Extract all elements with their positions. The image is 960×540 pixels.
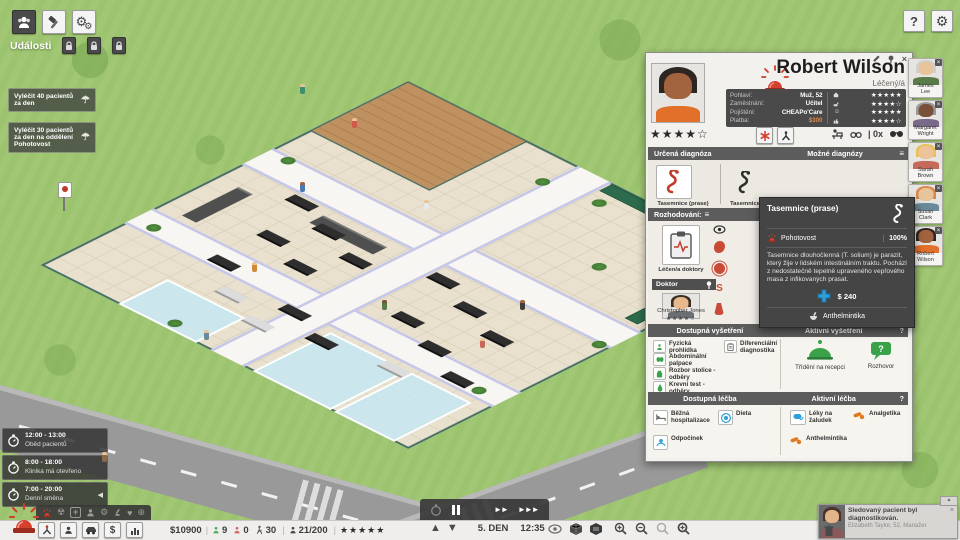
zoom-in-button[interactable] xyxy=(614,522,627,535)
stopwatch-icon xyxy=(7,488,20,501)
person-icon xyxy=(64,525,73,535)
mortar-icon xyxy=(809,312,818,321)
lock-icon xyxy=(65,41,73,51)
treatment-label: Dieta xyxy=(736,410,751,417)
diet-plate-icon xyxy=(721,413,731,423)
transport-button[interactable] xyxy=(82,522,99,538)
stopwatch-icon xyxy=(7,461,20,474)
exam-item[interactable]: Abdominální palpace xyxy=(653,353,719,367)
trash-button[interactable] xyxy=(824,525,834,537)
active-treatment-label: Léky na žaludek xyxy=(809,410,850,424)
org-icon xyxy=(42,525,52,535)
conversation-icon: ? xyxy=(870,341,892,361)
patient-info-box: Pohlaví:Muž, 52 Zaměstnání:Učitel Pojišt… xyxy=(726,89,906,127)
hospital-bed-icon xyxy=(656,414,666,422)
person[interactable] xyxy=(102,452,107,462)
person[interactable] xyxy=(204,330,209,340)
hospital-rating-stars: ★★★★★ xyxy=(340,525,385,536)
blood-test-icon xyxy=(657,384,663,392)
floor-down-button[interactable]: ▼ xyxy=(447,522,458,534)
physical-exam-icon xyxy=(656,343,663,351)
diagnosis-tree-button[interactable] xyxy=(777,127,794,144)
cardiology-dept-tab-icon[interactable]: ♥ xyxy=(127,508,132,518)
org-icon xyxy=(781,131,791,141)
treated-by-doctors-card[interactable] xyxy=(662,225,700,265)
active-treatment-label: Analgetika xyxy=(869,410,900,417)
notification-close-icon[interactable]: × xyxy=(947,505,957,538)
patient-panel: × Robert Wilson Léčený/á Pohlaví:Muž, 52… xyxy=(645,52,913,462)
zoom-reset-button[interactable] xyxy=(656,522,669,535)
schedule-row[interactable]: 8:00 - 18:00Klinika má otevřeno xyxy=(2,455,108,480)
emergency-dept-icon xyxy=(767,233,777,243)
schedule-row[interactable]: 12:00 - 13:00Oběd pacientů xyxy=(2,428,108,453)
notification-toast[interactable]: Sledovaný pacient byl diagnostikován. El… xyxy=(818,504,958,539)
fast-forward-button[interactable]: ►► xyxy=(494,505,508,514)
exams-available-header: Dostupná vyšetření xyxy=(648,326,772,335)
road-sign-pole xyxy=(63,197,65,211)
help-icon: ? xyxy=(910,14,918,29)
diagnosis-card-confirmed[interactable] xyxy=(656,165,692,199)
car-icon xyxy=(85,526,97,535)
differential-icon xyxy=(727,343,734,351)
people-icon xyxy=(17,15,31,29)
doctor-name: Christopher Jones xyxy=(648,308,714,315)
stopwatch-icon xyxy=(7,434,20,447)
game-screen: ⚙⚙ Události Vyléčit 40 pacientů za den ☂… xyxy=(0,0,960,540)
queue-patient-card[interactable]: MargaretWright× xyxy=(908,100,943,140)
active-treatment-label: Anthelmintika xyxy=(806,435,847,442)
pause-button[interactable] xyxy=(452,505,460,515)
decision-header: Rozhodování: xyxy=(648,210,702,219)
diagnosis-confirmed-label: Tasemnice (prase) xyxy=(648,201,718,208)
active-exam-label: Rozhovor xyxy=(856,363,906,370)
staff-list-button[interactable] xyxy=(60,522,77,538)
treatment-label: Běžná hospitalizace xyxy=(671,410,715,424)
info-label: Pojištění: xyxy=(730,109,755,116)
treatment-item[interactable]: Odpočinek xyxy=(653,435,715,450)
patient-ok-icon xyxy=(212,525,220,535)
pin-location-icon xyxy=(706,281,712,289)
schedule-label: Klinika má otevřeno xyxy=(25,468,81,476)
queue-patient-name: SarahBrown xyxy=(909,168,942,180)
list-icon[interactable]: ≡ xyxy=(895,149,908,158)
lock-icon xyxy=(90,41,98,51)
diagnosis-card-possible[interactable] xyxy=(728,165,762,199)
staff-menu-button[interactable] xyxy=(12,10,36,34)
queue-patient-name: MargaretWright xyxy=(909,126,942,138)
comfort-stat-icon xyxy=(833,101,839,107)
bar-chart-icon xyxy=(130,526,140,535)
menu-icon: ≡ xyxy=(702,210,710,219)
playback-strip: ►► ►►► xyxy=(420,499,549,520)
view-mode-button[interactable] xyxy=(570,523,582,535)
handcuffs-icon xyxy=(850,129,862,140)
tooltip-dept-label: Pohotovost xyxy=(781,235,879,242)
org-chart-button[interactable] xyxy=(38,522,55,538)
person[interactable] xyxy=(300,84,305,94)
doctor-rating: ★★★★☆ xyxy=(648,316,714,322)
active-treatment-item[interactable]: Analgetika xyxy=(853,410,907,420)
clinic-dept-tab-icon[interactable]: + xyxy=(70,507,81,518)
zoom-fit-button[interactable] xyxy=(677,522,690,535)
emergency-dept-tab-icon[interactable] xyxy=(42,508,52,518)
road-sign xyxy=(58,182,72,198)
possible-header: Možné diagnózy xyxy=(775,149,896,158)
stopwatch-icon xyxy=(430,504,442,516)
stats-button[interactable] xyxy=(126,522,143,538)
event-slot-locked[interactable] xyxy=(62,37,76,54)
schedule-time: 8:00 - 18:00 xyxy=(25,459,62,466)
patient-critical-icon xyxy=(233,525,241,535)
svg-text:?: ? xyxy=(878,344,884,354)
queue-close-icon[interactable]: × xyxy=(935,227,942,234)
info-value: Učitel xyxy=(806,100,823,107)
fastest-forward-button[interactable]: ►►► xyxy=(518,505,539,514)
layer-mode-button[interactable] xyxy=(590,523,602,535)
event-slot-locked[interactable] xyxy=(112,37,126,54)
person[interactable] xyxy=(480,338,485,348)
diagnosed-header: Určená diagnóza xyxy=(648,149,775,158)
collapse-arrow-icon[interactable]: ◀ xyxy=(98,491,103,499)
treated-by-label: Léčen/a doktory xyxy=(648,267,714,274)
lock-icon xyxy=(115,41,123,51)
edit-icon[interactable] xyxy=(872,55,880,63)
patient-walking-count: 30 xyxy=(266,525,277,536)
capacity-icon xyxy=(289,525,297,535)
tooltip-price: $ 240 xyxy=(837,292,856,301)
objective-banner: Vyléčit 40 pacientů za den ☂ xyxy=(8,88,96,112)
patient-ok-count: 9 xyxy=(222,525,227,536)
queue-patient-name: JamesLee xyxy=(909,84,942,96)
person[interactable] xyxy=(300,182,305,192)
info-value: CHEAPo'Care xyxy=(782,109,823,116)
exam-label: Abdominální palpace xyxy=(669,353,719,367)
tooltip-treatment: Anthelmintika xyxy=(823,313,865,320)
gears-icon-small: ⚙ xyxy=(84,21,92,32)
settings-dept-tab-icon[interactable]: ⚙ xyxy=(100,507,108,518)
schedule-panel: 12:00 - 13:00Oběd pacientů 8:00 - 18:00K… xyxy=(2,428,108,509)
pin-icon[interactable] xyxy=(887,55,895,63)
event-slot-locked[interactable] xyxy=(87,37,101,54)
stat-stars: ★★★★☆ xyxy=(871,117,902,125)
stretcher-icon xyxy=(831,128,844,140)
symptom-bacteria-icon xyxy=(714,263,725,274)
treatment-item[interactable]: Dieta xyxy=(718,410,770,425)
person[interactable] xyxy=(520,300,525,310)
info-label: Zaměstnání: xyxy=(730,100,764,107)
stat-stars: ★★★★★ xyxy=(871,91,902,99)
tooltip-dept-value: 100% xyxy=(883,235,907,242)
exam-label: Rozbor stolice - odběry xyxy=(669,367,719,381)
visibility-button[interactable] xyxy=(548,524,562,534)
medical-cross-icon xyxy=(817,289,831,303)
symptom-ulcer-icon: S xyxy=(714,283,725,294)
palpation-icon xyxy=(656,356,664,363)
info-label: Pohlaví: xyxy=(730,92,752,99)
stat-stars: ★★★★★ xyxy=(871,108,902,116)
treatment-item[interactable]: Běžná hospitalizace xyxy=(653,410,715,425)
tooltip-title: Tasemnice (prase) xyxy=(767,204,872,214)
health-stat-icon: ☺ xyxy=(833,109,840,115)
tooltip-description: Tasemnice dlouhočlenná (T. solium) je pa… xyxy=(767,252,907,284)
tapeworm-icon xyxy=(664,170,684,194)
notification-subtitle: Elizabeth Taylor, 52, Manažer xyxy=(848,523,944,529)
dollar-icon: $ xyxy=(110,525,116,536)
settings-menu-button[interactable]: ⚙⚙ xyxy=(72,10,96,34)
capacity-value: 21/200 xyxy=(299,525,328,536)
world-dept-tab-icon[interactable]: ⊕ xyxy=(138,507,146,518)
exam-label: Diferenciální diagnostika xyxy=(740,340,778,354)
cloche-icon xyxy=(806,339,834,361)
symptom-eye-icon xyxy=(713,225,726,234)
queue-close-icon[interactable]: × xyxy=(935,143,942,150)
doctor-subheader: Doktor xyxy=(652,279,716,290)
person[interactable] xyxy=(252,262,257,272)
glasses-icon xyxy=(889,130,904,138)
hammer-icon xyxy=(47,15,62,30)
notification-expand-tab[interactable]: ▲ xyxy=(940,496,958,506)
rest-icon xyxy=(656,438,666,447)
exam-item[interactable]: Diferenciální diagnostika xyxy=(724,340,778,354)
star-of-life-button[interactable] xyxy=(756,127,773,144)
tapeworm-icon xyxy=(736,171,755,194)
mood-stat-icon xyxy=(833,92,839,98)
relapse-count: | 0x xyxy=(868,129,883,139)
treatment-available-header: Dostupná léčba xyxy=(648,394,772,403)
schedule-time: 12:00 - 13:00 xyxy=(25,432,66,439)
info-value: Muž, 52 xyxy=(800,92,822,99)
stomach-pills-icon xyxy=(793,413,804,422)
patient-stars: ★★★★☆ xyxy=(650,127,709,141)
queue-close-icon[interactable]: × xyxy=(935,59,942,66)
tapeworm-icon xyxy=(891,204,907,224)
active-treatment-item[interactable]: Anthelmintika xyxy=(790,435,856,445)
active-treatment-item[interactable]: Léky na žaludek xyxy=(790,410,850,425)
objective-text: Vyléčit 40 pacientů za den xyxy=(14,93,77,107)
help-button[interactable]: ? xyxy=(903,10,925,32)
patient-portrait xyxy=(651,63,705,123)
gear-icon: ⚙ xyxy=(936,13,949,30)
zoom-out-button[interactable] xyxy=(635,522,648,535)
money-value: $10900 xyxy=(170,525,202,536)
emergency-alarm-button[interactable] xyxy=(8,502,40,536)
objective-banner: Vyléčit 30 pacientů za den na oddělení P… xyxy=(8,122,96,153)
schedule-label: Oběd pacientů xyxy=(25,441,67,449)
help-icon[interactable]: ? xyxy=(896,394,908,403)
events-label: Události xyxy=(10,40,51,52)
active-exam-item[interactable]: ? Rozhovor xyxy=(856,341,906,370)
patient-status: Léčený/á xyxy=(873,79,905,88)
schedule-time: 7:00 - 20:00 xyxy=(25,486,62,493)
umbrella-icon: ☂ xyxy=(81,95,90,106)
notification-title: Sledovaný pacient byl diagnostikován. xyxy=(848,507,944,522)
info-value-payment: $300 xyxy=(809,117,823,124)
queue-close-icon[interactable]: × xyxy=(935,185,942,192)
exam-item[interactable]: Rozbor stolice - odběry xyxy=(653,367,719,381)
symptom-sample-icon xyxy=(714,303,724,315)
patient-critical-count: 0 xyxy=(243,525,248,536)
lab-dept-tab-icon[interactable] xyxy=(113,508,122,517)
staff-dept-tab-icon[interactable] xyxy=(86,508,95,517)
objective-text: Vyléčit 30 pacientů za den na oddělení P… xyxy=(14,127,77,148)
star-of-life-icon xyxy=(760,131,770,141)
diagnosis-tooltip: Tasemnice (prase) Pohotovost 100% Tasemn… xyxy=(759,197,915,328)
doctor-header-label: Doktor xyxy=(656,281,678,288)
clipboard-ecg-icon xyxy=(670,231,692,259)
department-tab-strip: ☢ + ⚙ ♥ ⊕ xyxy=(36,505,151,520)
symptom-stomach-icon xyxy=(714,241,725,253)
person[interactable] xyxy=(352,118,357,128)
analgesic-pills-icon xyxy=(853,410,865,420)
queue-patient-card[interactable]: JamesLee× xyxy=(908,58,943,98)
options-button[interactable]: ⚙ xyxy=(931,10,953,32)
chevron-up-icon: ▲ xyxy=(947,497,952,503)
active-exam-label: Třídění na recepci xyxy=(790,364,850,371)
anthelmintic-pills-icon xyxy=(790,435,802,445)
alarm-siren-icon xyxy=(8,502,40,536)
close-icon[interactable]: × xyxy=(902,55,907,63)
active-exam-item[interactable]: Třídění na recepci xyxy=(790,339,850,371)
radiology-dept-tab-icon[interactable]: ☢ xyxy=(57,507,65,518)
umbrella-icon: ☂ xyxy=(81,132,90,143)
treatment-label: Odpočinek xyxy=(671,435,703,442)
queue-patient-card[interactable]: SarahBrown× xyxy=(908,142,943,182)
clock-label: 12:35 xyxy=(520,523,544,534)
patient-walking-icon xyxy=(255,525,264,535)
satisfaction-stat-icon xyxy=(833,118,839,124)
person[interactable] xyxy=(424,200,429,210)
stool-sample-icon xyxy=(656,370,663,378)
build-menu-button[interactable] xyxy=(42,10,66,34)
floor-up-button[interactable]: ▲ xyxy=(430,522,441,534)
queue-close-icon[interactable]: × xyxy=(935,101,942,108)
person[interactable] xyxy=(382,300,387,310)
info-label: Platba: xyxy=(730,117,749,124)
treatment-active-header: Aktivní léčba xyxy=(772,394,896,403)
stat-stars: ★★★★☆ xyxy=(871,100,902,108)
day-label: 5. DEN xyxy=(478,523,509,534)
finance-button[interactable]: $ xyxy=(104,522,121,538)
